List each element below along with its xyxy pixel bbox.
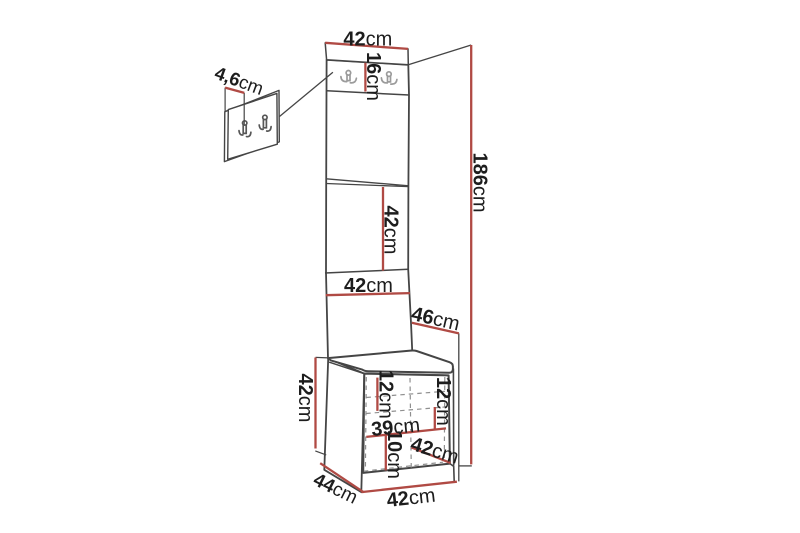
svg-text:12cm: 12cm [375, 370, 397, 419]
svg-text:42cm: 42cm [294, 374, 316, 423]
svg-text:186cm: 186cm [469, 152, 491, 212]
svg-text:42cm: 42cm [344, 275, 393, 297]
svg-text:16cm: 16cm [362, 52, 384, 101]
svg-text:12cm: 12cm [432, 377, 454, 426]
svg-text:42cm: 42cm [343, 29, 392, 51]
svg-text:10cm: 10cm [383, 430, 405, 479]
svg-text:42cm: 42cm [380, 205, 402, 254]
